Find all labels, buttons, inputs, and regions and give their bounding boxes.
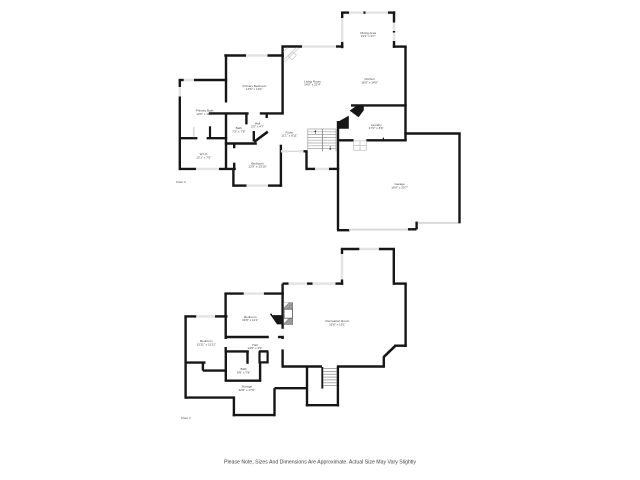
svg-text:14'0" x 22'4": 14'0" x 22'4" xyxy=(304,83,321,87)
svg-text:14'6" x 13'1": 14'6" x 13'1" xyxy=(246,87,263,91)
svg-text:7'2" x 7'8": 7'2" x 7'8" xyxy=(232,129,245,133)
svg-text:Floor 2: Floor 2 xyxy=(176,180,186,184)
svg-text:2'5" x 4'7": 2'5" x 4'7" xyxy=(251,125,264,129)
svg-text:Floor 1: Floor 1 xyxy=(181,416,191,420)
svg-text:12'9" x 13'10": 12'9" x 13'10" xyxy=(248,165,266,169)
svg-text:11'1" x 8'11": 11'1" x 8'11" xyxy=(281,134,297,138)
svg-text:14'8" x 11'1": 14'8" x 11'1" xyxy=(242,318,258,322)
svg-text:13'2" x 9'7": 13'2" x 9'7" xyxy=(361,34,376,38)
svg-text:17'0" x 6'6": 17'0" x 6'6" xyxy=(369,126,384,130)
svg-text:32'8" x 15'1": 32'8" x 15'1" xyxy=(329,322,346,326)
svg-text:13'11" x 11'11": 13'11" x 11'11" xyxy=(197,342,216,346)
svg-text:16'9" x 23'7": 16'9" x 23'7" xyxy=(391,185,408,189)
svg-text:12'1" x 7'5": 12'1" x 7'5" xyxy=(196,155,211,159)
svg-text:8'8" x 7'8": 8'8" x 7'8" xyxy=(237,370,250,374)
svg-text:14'9" x 3'9": 14'9" x 3'9" xyxy=(247,346,262,350)
svg-text:16'0" x 14'8": 16'0" x 14'8" xyxy=(361,80,378,84)
svg-text:12'0" x 11'6": 12'0" x 11'6" xyxy=(196,112,212,116)
svg-text:Please Note, Sizes And Dimensi: Please Note, Sizes And Dimensions Are Ap… xyxy=(224,460,416,466)
svg-text:32'8" x 17'0": 32'8" x 17'0" xyxy=(238,388,255,392)
